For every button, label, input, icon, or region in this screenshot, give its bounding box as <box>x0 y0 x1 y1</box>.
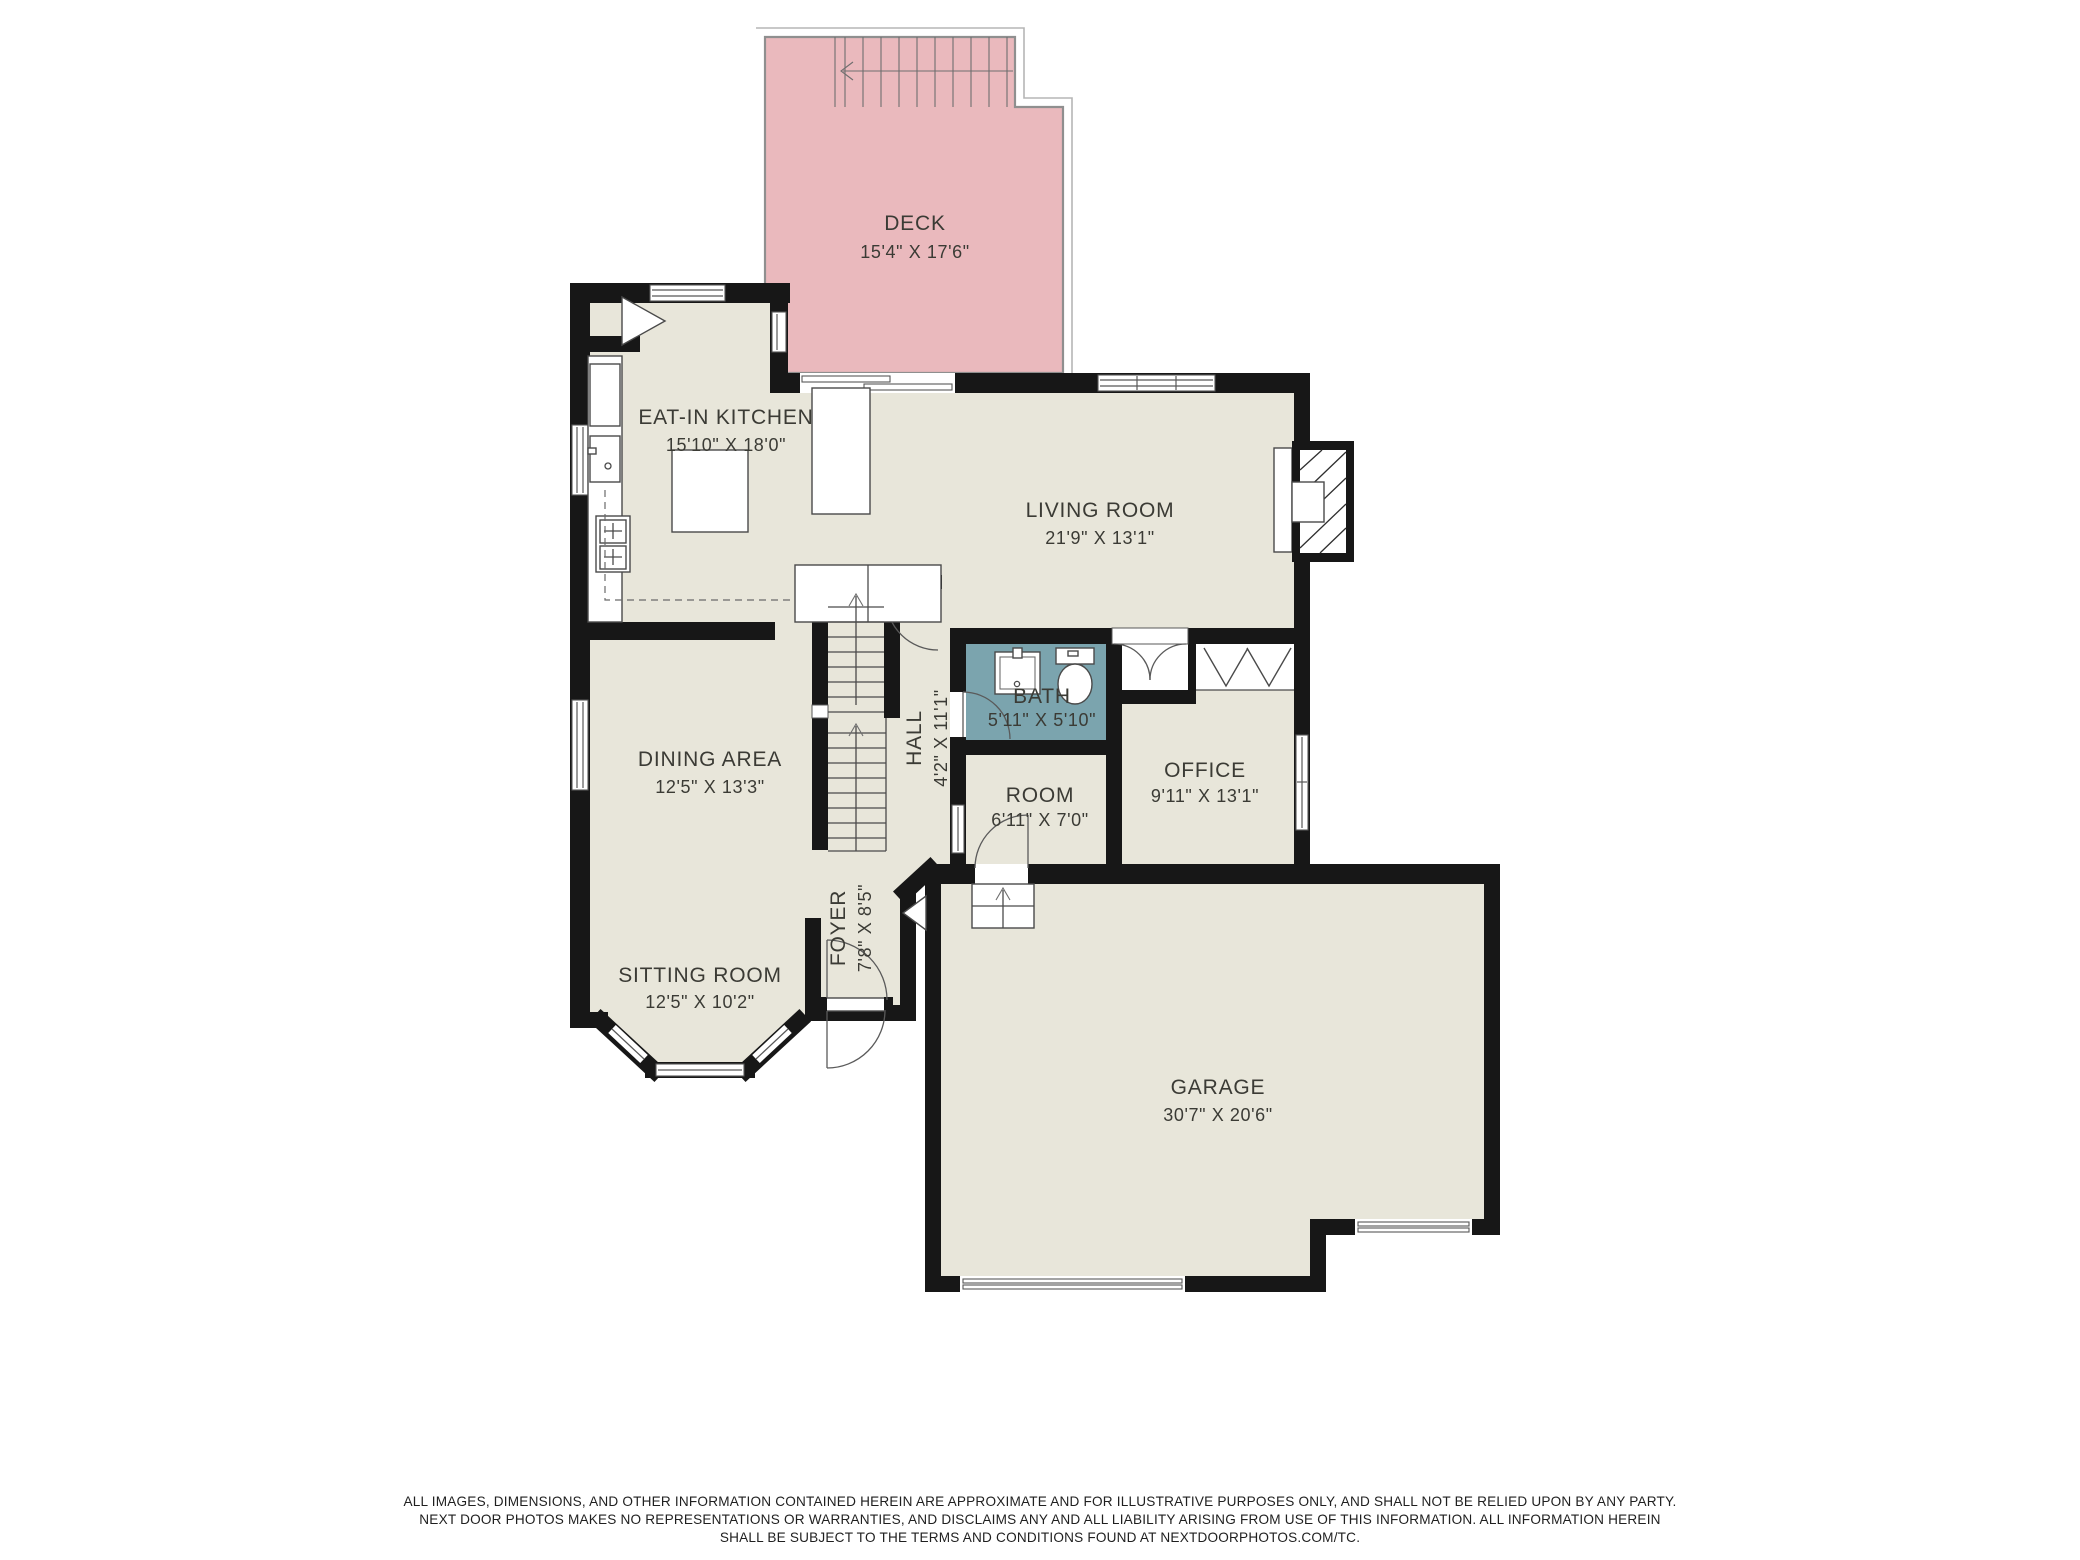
kitchen-island <box>672 450 748 532</box>
window <box>572 425 588 495</box>
label-dining-name: DINING AREA <box>638 748 782 771</box>
closet-double-door-floor <box>1112 640 1188 694</box>
disclaimer-line-1: ALL IMAGES, DIMENSIONS, AND OTHER INFORM… <box>404 1494 1677 1509</box>
label-room-dims: 6'11" X 7'0" <box>991 810 1089 830</box>
wall <box>570 622 775 640</box>
fireplace-icon <box>1274 441 1354 562</box>
deck-floor <box>765 37 1063 373</box>
label-hall-dims: 4'2" X 11'1" <box>931 689 951 787</box>
label-deck-dims: 15'4" X 17'6" <box>860 242 970 262</box>
label-sitting-name: SITTING ROOM <box>618 964 782 987</box>
window <box>1098 375 1215 391</box>
floor-plan-drawing: DECK 15'4" X 17'6" EAT-IN KITCHEN 15'10"… <box>0 0 2080 1560</box>
wall <box>1294 552 1310 884</box>
label-bath-dims: 5'11" X 5'10" <box>988 710 1096 730</box>
label-kitchen-name: EAT-IN KITCHEN <box>638 406 813 429</box>
peninsula-counter <box>795 565 941 622</box>
label-office-dims: 9'11" X 13'1" <box>1151 786 1259 806</box>
window <box>772 312 786 352</box>
disclaimer: ALL IMAGES, DIMENSIONS, AND OTHER INFORM… <box>404 1494 1677 1545</box>
wall <box>812 718 828 850</box>
floor-plan-page: DECK 15'4" X 17'6" EAT-IN KITCHEN 15'10"… <box>0 0 2080 1560</box>
window <box>650 285 725 301</box>
label-dining-dims: 12'5" X 13'3" <box>655 777 765 797</box>
label-foyer-dims: 7'8" X 8'5" <box>855 884 875 972</box>
tall-cabinet <box>812 388 870 514</box>
garage-door-side <box>1355 1219 1472 1235</box>
refrigerator-icon <box>590 364 620 426</box>
label-garage-dims: 30'7" X 20'6" <box>1163 1105 1273 1125</box>
label-foyer-name: FOYER <box>827 890 850 966</box>
label-bath-name: BATH <box>1013 685 1071 708</box>
garage-steps-icon <box>972 884 1034 928</box>
label-living-name: LIVING ROOM <box>1026 499 1175 522</box>
label-hall-name: HALL <box>903 710 926 766</box>
stove-icon <box>596 516 630 572</box>
wall <box>1294 393 1310 448</box>
wall <box>900 885 916 1005</box>
window <box>572 700 588 790</box>
disclaimer-line-2: NEXT DOOR PHOTOS MAKES NO REPRESENTATION… <box>419 1512 1660 1527</box>
wall <box>570 283 590 1028</box>
wall <box>1188 628 1196 694</box>
label-office-name: OFFICE <box>1164 759 1246 782</box>
label-garage-name: GARAGE <box>1171 1076 1266 1099</box>
label-room-name: ROOM <box>1006 784 1075 807</box>
disclaimer-line-3: SHALL BE SUBJECT TO THE TERMS AND CONDIT… <box>720 1530 1360 1545</box>
wall <box>1484 868 1500 1235</box>
label-living-dims: 21'9" X 13'1" <box>1045 528 1155 548</box>
garage-door-main <box>960 1276 1185 1292</box>
wall <box>950 740 1122 755</box>
wall <box>925 868 941 1292</box>
label-deck-name: DECK <box>884 212 946 235</box>
window <box>812 705 828 718</box>
label-kitchen-dims: 15'10" X 18'0" <box>666 435 786 455</box>
deck-area <box>756 28 1072 381</box>
label-sitting-dims: 12'5" X 10'2" <box>645 992 755 1012</box>
wall <box>1310 1219 1326 1292</box>
kitchen-sink-icon <box>588 436 620 482</box>
